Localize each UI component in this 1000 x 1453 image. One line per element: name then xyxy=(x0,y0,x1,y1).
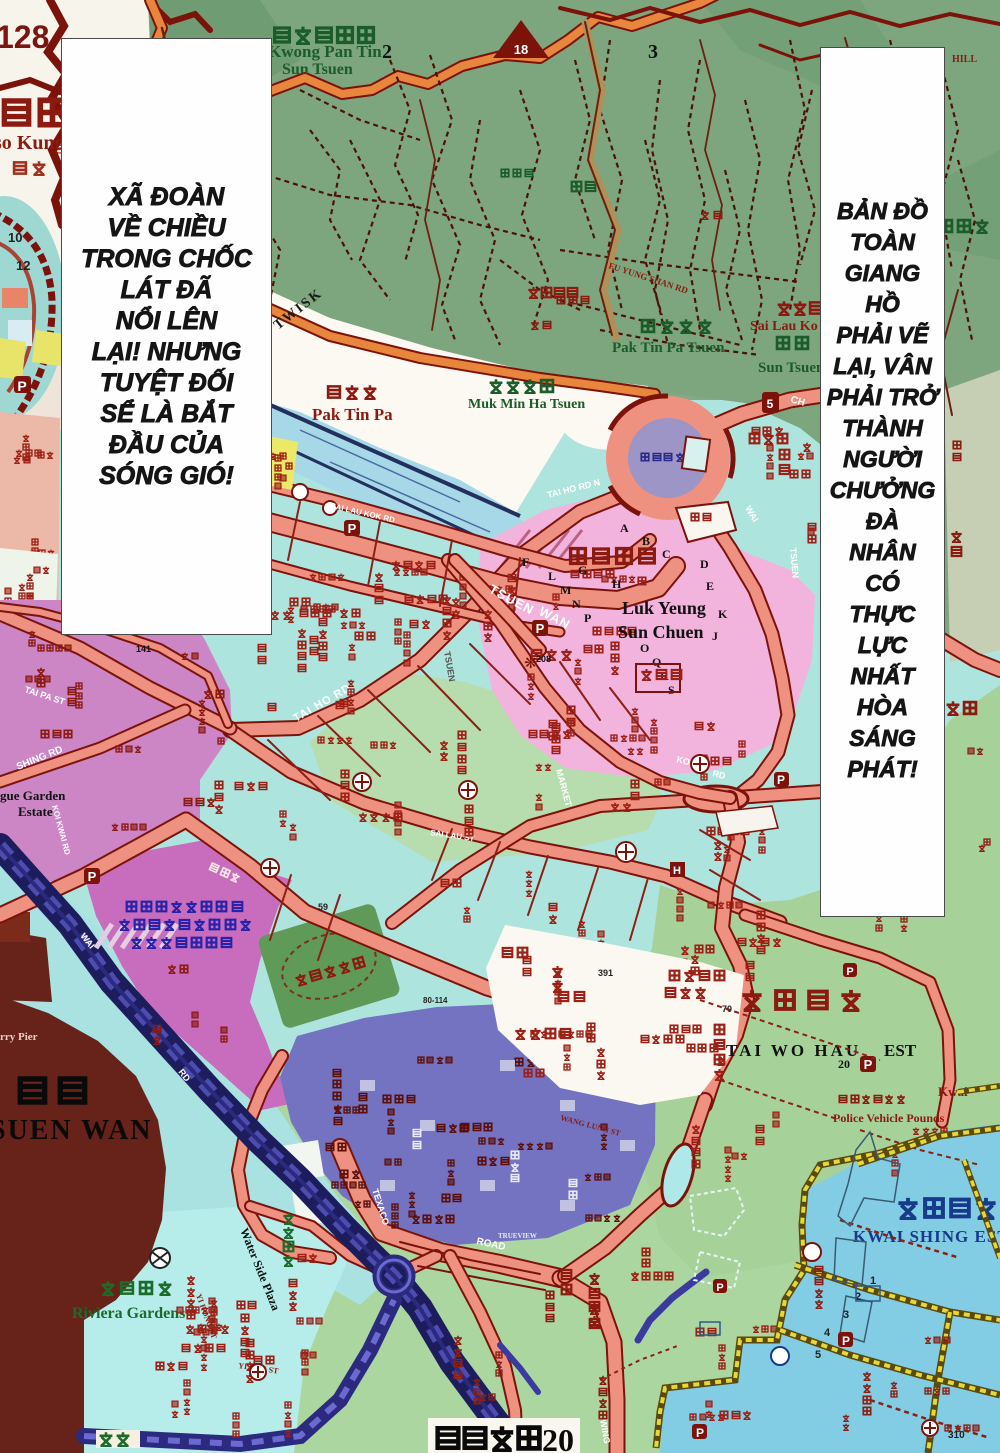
svg-text:P: P xyxy=(846,966,853,978)
svg-text:HILL: HILL xyxy=(952,54,977,65)
svg-text:3: 3 xyxy=(648,41,658,63)
svg-text:L: L xyxy=(548,569,556,583)
svg-text:SUEN WAN: SUEN WAN xyxy=(0,1115,153,1146)
svg-text:Sai Lau Ko: Sai Lau Ko xyxy=(750,319,818,334)
svg-text:F: F xyxy=(522,555,529,569)
svg-text:Police Vehicle Pounds: Police Vehicle Pounds xyxy=(833,1111,945,1125)
svg-text:10: 10 xyxy=(8,230,22,245)
svg-text:S: S xyxy=(668,683,675,697)
svg-text:Sun Tsuen: Sun Tsuen xyxy=(282,61,353,78)
svg-text:20: 20 xyxy=(838,1057,850,1071)
svg-text:KWAI SHING EST: KWAI SHING EST xyxy=(853,1227,1000,1246)
svg-text:Estate: Estate xyxy=(18,804,53,819)
svg-text:E: E xyxy=(706,579,714,593)
svg-text:G: G xyxy=(578,563,587,577)
svg-text:P: P xyxy=(777,773,785,787)
svg-text:EST: EST xyxy=(884,1041,917,1060)
svg-text:Q: Q xyxy=(652,655,661,669)
svg-text:3: 3 xyxy=(843,1309,849,1321)
svg-text:Sun Tsuen: Sun Tsuen xyxy=(758,360,825,376)
svg-text:391: 391 xyxy=(598,968,613,978)
svg-text:P: P xyxy=(716,1282,723,1294)
svg-text:310: 310 xyxy=(948,1430,965,1441)
svg-text:P: P xyxy=(17,378,26,394)
svg-text:P: P xyxy=(348,521,357,536)
svg-text:2: 2 xyxy=(382,41,392,63)
svg-text:Riviera Gardens: Riviera Gardens xyxy=(72,1305,185,1322)
svg-text:59: 59 xyxy=(318,902,328,912)
svg-text:141: 141 xyxy=(136,644,151,654)
svg-text:P: P xyxy=(842,1334,850,1348)
svg-text:❋: ❋ xyxy=(524,655,537,672)
svg-text:gue Garden: gue Garden xyxy=(0,788,66,803)
svg-text:C: C xyxy=(662,547,671,561)
svg-text:J: J xyxy=(712,629,718,643)
svg-text:Pak Tin Pa: Pak Tin Pa xyxy=(312,405,393,424)
svg-text:D: D xyxy=(700,557,709,571)
svg-text:208: 208 xyxy=(536,654,551,664)
svg-text:80-114: 80-114 xyxy=(423,996,448,1005)
svg-text:B: B xyxy=(642,534,650,548)
svg-text:Luk Yeung: Luk Yeung xyxy=(622,598,706,618)
svg-text:O: O xyxy=(640,641,649,655)
svg-text:P: P xyxy=(864,1057,873,1072)
svg-text:128: 128 xyxy=(0,19,49,55)
svg-text:so Kung: so Kung xyxy=(0,132,65,154)
svg-text:1: 1 xyxy=(870,1275,876,1287)
svg-text:TRUEVIEW: TRUEVIEW xyxy=(498,1232,537,1240)
svg-text:P: P xyxy=(536,621,545,636)
svg-text:K: K xyxy=(718,607,728,621)
svg-text:18: 18 xyxy=(514,42,528,57)
svg-text:5: 5 xyxy=(815,1349,821,1361)
svg-text:H: H xyxy=(673,865,681,877)
svg-text:A: A xyxy=(620,521,629,535)
svg-text:P: P xyxy=(584,611,591,625)
svg-text:M: M xyxy=(560,583,571,597)
svg-text:rry Pier: rry Pier xyxy=(0,1031,38,1043)
svg-text:20: 20 xyxy=(542,1422,574,1453)
svg-text:P: P xyxy=(88,869,97,884)
svg-text:N: N xyxy=(572,597,581,611)
svg-text:Kwong Pan Tin: Kwong Pan Tin xyxy=(268,42,382,61)
svg-text:Muk Min Ha Tsuen: Muk Min Ha Tsuen xyxy=(468,397,585,412)
svg-text:Pak Tin Pa Tsuen: Pak Tin Pa Tsuen xyxy=(612,340,725,356)
svg-text:P: P xyxy=(696,1426,704,1440)
svg-text:5: 5 xyxy=(767,397,774,411)
svg-text:4: 4 xyxy=(824,1327,831,1339)
svg-text:12: 12 xyxy=(16,258,30,273)
svg-text:Sun Chuen: Sun Chuen xyxy=(618,622,704,642)
svg-text:H: H xyxy=(612,577,622,591)
